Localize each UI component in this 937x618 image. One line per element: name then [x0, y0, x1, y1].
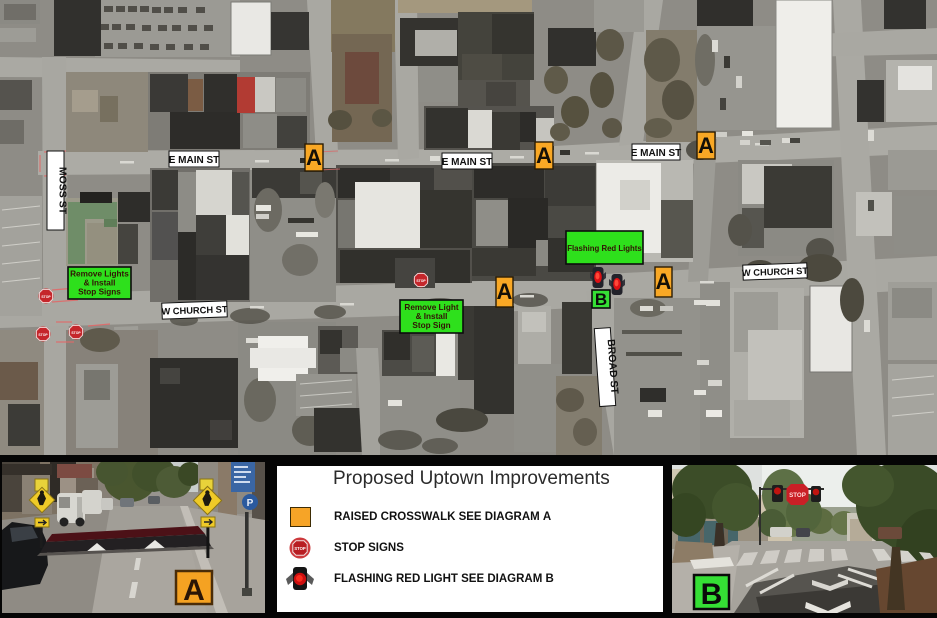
- svg-text:STOP: STOP: [789, 492, 806, 499]
- svg-text:STOP: STOP: [38, 333, 48, 337]
- svg-text:& Install: & Install: [416, 312, 448, 321]
- svg-text:Remove Light: Remove Light: [404, 303, 458, 312]
- svg-text:STOP: STOP: [416, 279, 426, 283]
- svg-text:B: B: [701, 578, 723, 611]
- svg-text:E MAIN ST: E MAIN ST: [169, 155, 220, 166]
- svg-text:STOP: STOP: [71, 331, 81, 335]
- svg-text:A: A: [536, 143, 552, 168]
- svg-text:A: A: [698, 133, 714, 158]
- svg-text:A: A: [306, 145, 322, 170]
- svg-text:Remove Lights: Remove Lights: [70, 270, 129, 279]
- svg-text:Flashing Red Lights: Flashing Red Lights: [567, 244, 642, 253]
- svg-text:STOP: STOP: [294, 546, 306, 551]
- svg-text:B: B: [595, 290, 607, 309]
- svg-text:& Install: & Install: [84, 279, 116, 288]
- svg-text:E MAIN ST: E MAIN ST: [442, 157, 493, 168]
- svg-text:E MAIN ST: E MAIN ST: [631, 148, 682, 159]
- svg-text:MOSS ST: MOSS ST: [57, 167, 69, 215]
- svg-text:Stop Signs: Stop Signs: [78, 288, 121, 297]
- svg-text:P: P: [247, 498, 254, 509]
- svg-text:STOP: STOP: [41, 295, 51, 299]
- svg-text:A: A: [183, 574, 205, 607]
- svg-text:Stop Sign: Stop Sign: [412, 321, 450, 330]
- svg-text:A: A: [497, 279, 513, 304]
- svg-text:A: A: [656, 269, 672, 294]
